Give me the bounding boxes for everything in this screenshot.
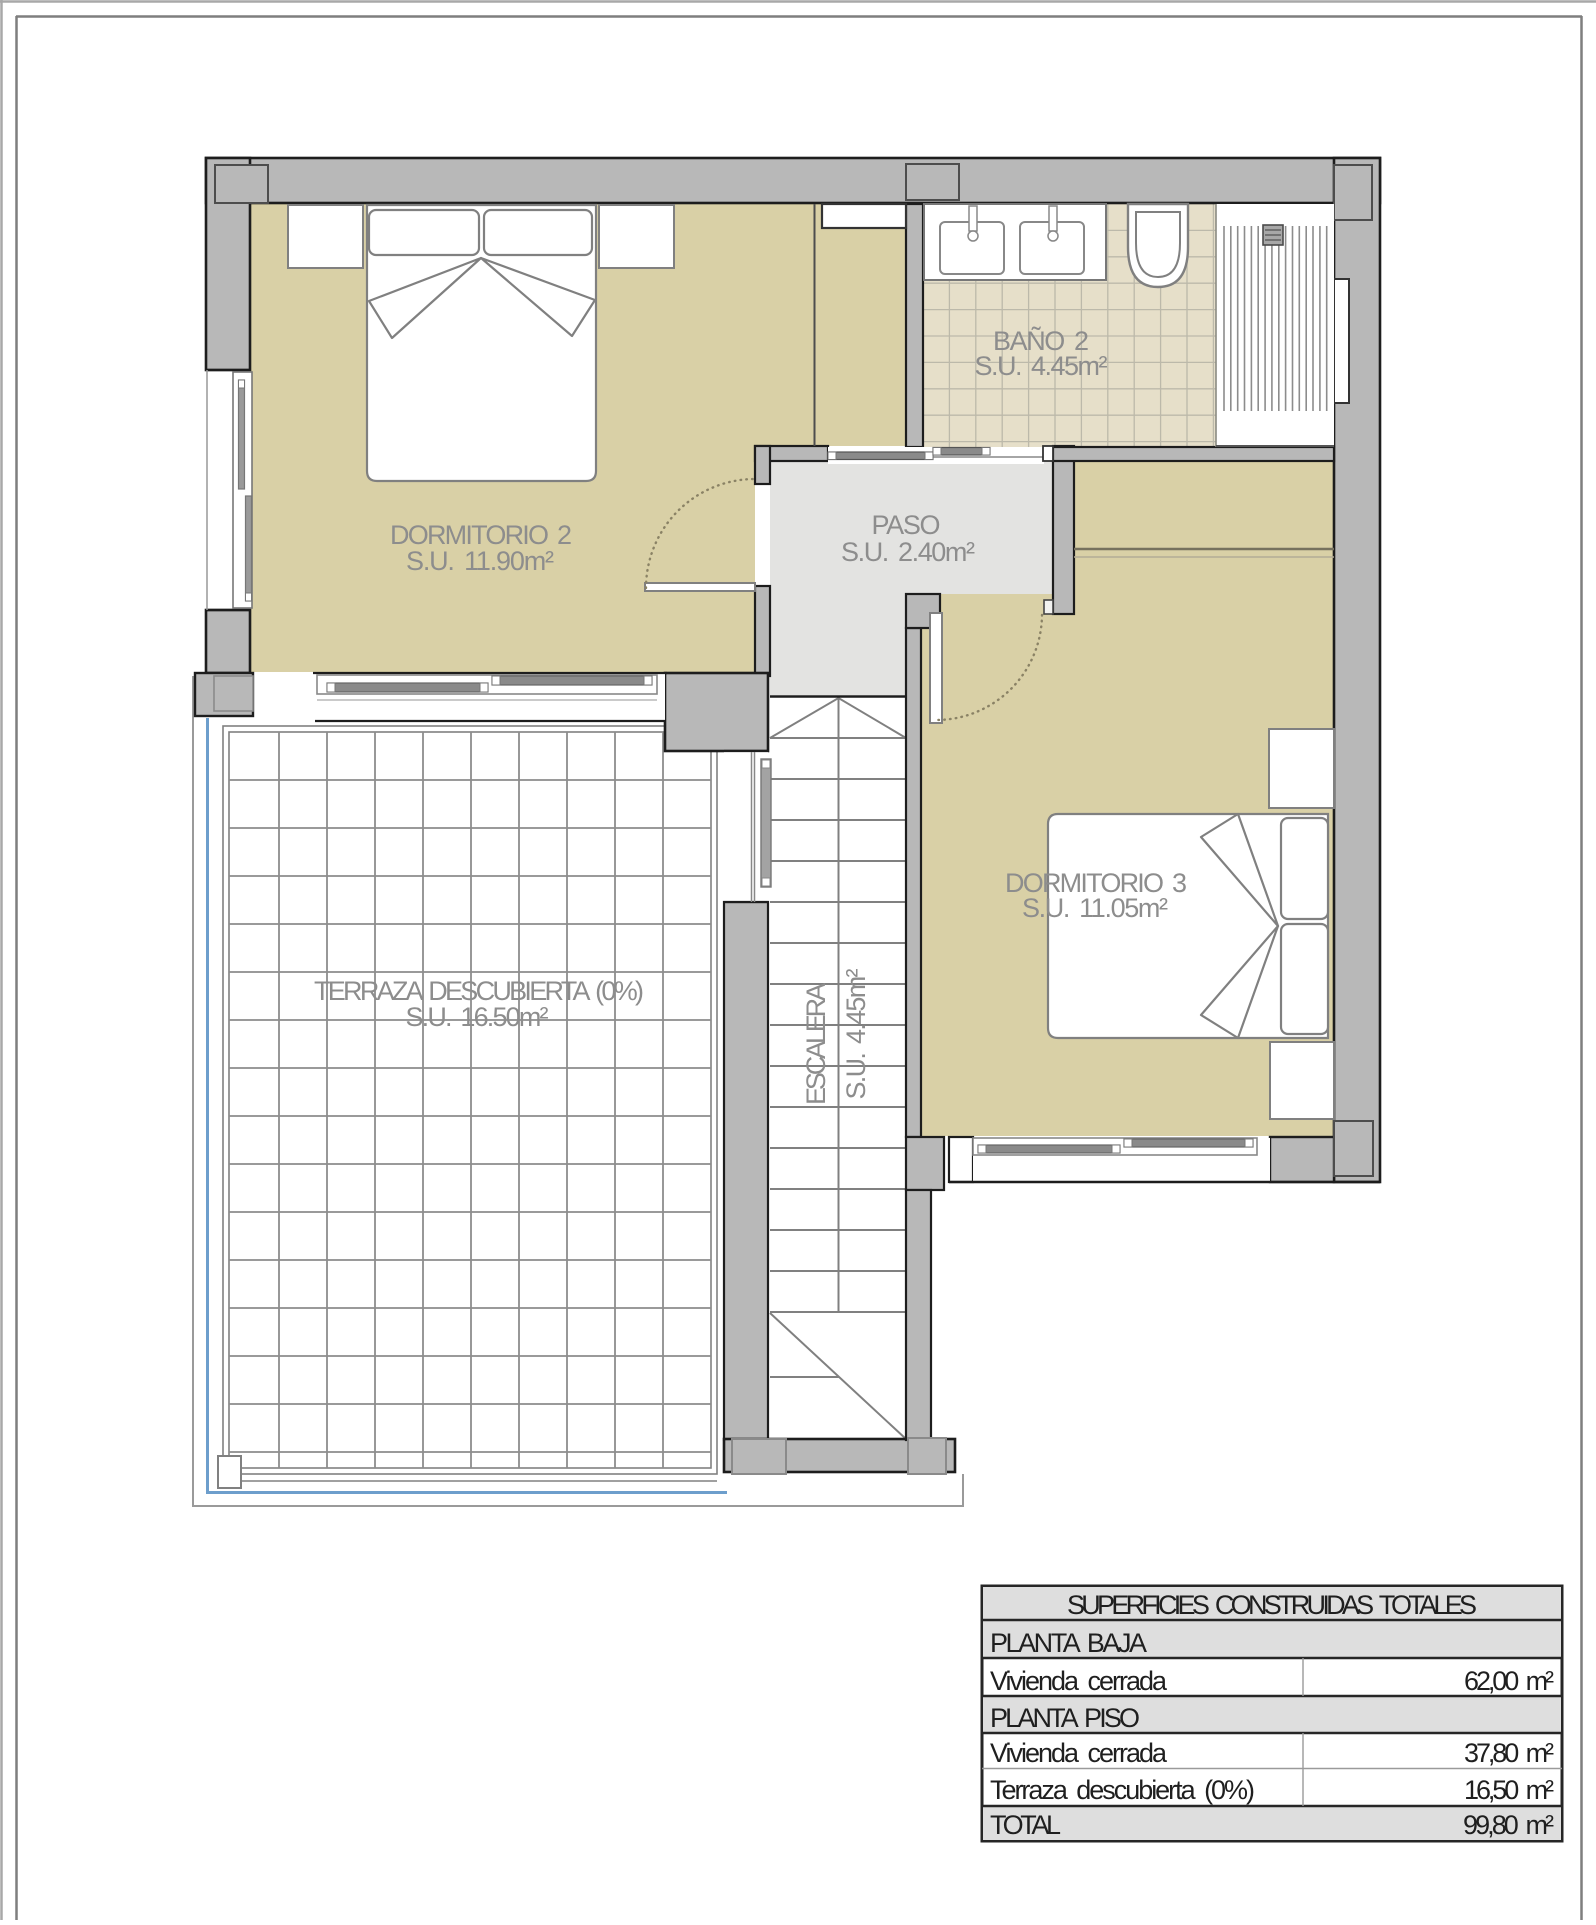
svg-text:S.U. 11.05m²: S.U. 11.05m² bbox=[1022, 893, 1168, 923]
svg-text:ESCALERA: ESCALERA bbox=[801, 983, 831, 1105]
svg-text:PLANTA PISO: PLANTA PISO bbox=[990, 1703, 1140, 1733]
svg-text:Terraza descubierta (0%): Terraza descubierta (0%) bbox=[990, 1775, 1255, 1805]
svg-text:99,80 m²: 99,80 m² bbox=[1463, 1810, 1554, 1840]
svg-text:PASO: PASO bbox=[872, 510, 941, 540]
svg-text:Vivienda cerrada: Vivienda cerrada bbox=[990, 1738, 1168, 1768]
svg-text:S.U. 16.50m²: S.U. 16.50m² bbox=[406, 1002, 549, 1032]
svg-text:16,50 m²: 16,50 m² bbox=[1464, 1775, 1554, 1805]
svg-text:Vivienda cerrada: Vivienda cerrada bbox=[990, 1666, 1168, 1696]
svg-text:62,00 m²: 62,00 m² bbox=[1464, 1666, 1554, 1696]
svg-text:S.U. 11.90m²: S.U. 11.90m² bbox=[406, 546, 554, 576]
svg-text:TOTAL: TOTAL bbox=[990, 1810, 1061, 1840]
svg-text:S.U. 2.40m²: S.U. 2.40m² bbox=[841, 537, 975, 567]
svg-text:S.U. 4.45m²: S.U. 4.45m² bbox=[841, 969, 871, 1100]
svg-text:37,80 m²: 37,80 m² bbox=[1464, 1738, 1554, 1768]
svg-text:S.U. 4.45m²: S.U. 4.45m² bbox=[975, 351, 1108, 381]
svg-text:SUPERFICIES CONSTRUIDAS TOTALE: SUPERFICIES CONSTRUIDAS TOTALES bbox=[1067, 1590, 1477, 1620]
svg-text:PLANTA BAJA: PLANTA BAJA bbox=[990, 1628, 1147, 1658]
